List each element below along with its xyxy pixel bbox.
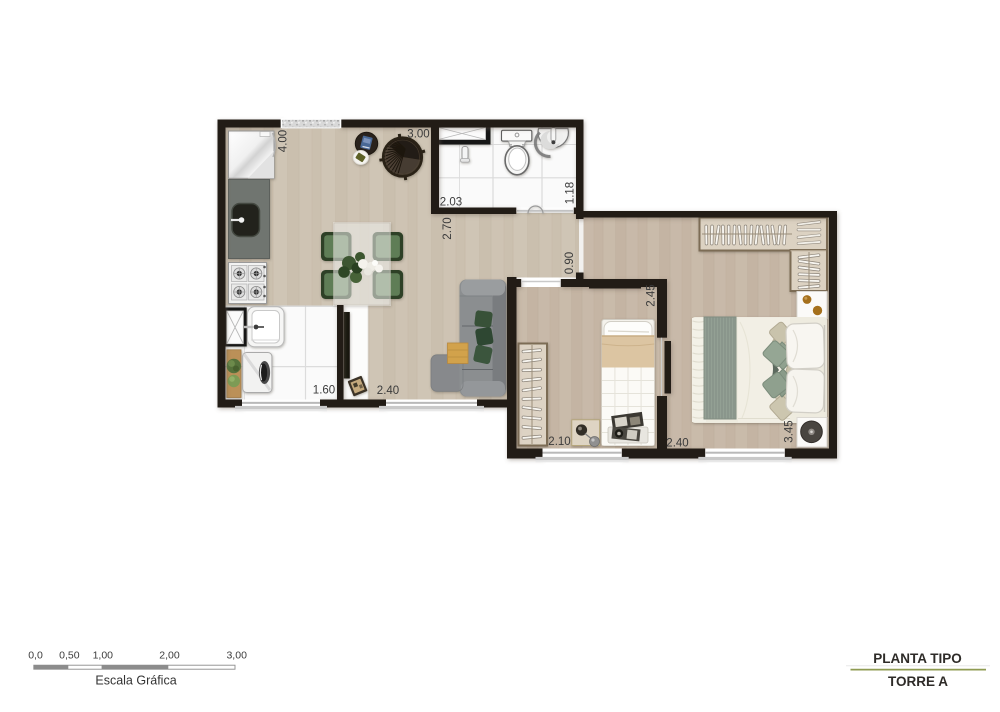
svg-text:1,00: 1,00 — [93, 650, 114, 662]
svg-text:4.00: 4.00 — [278, 130, 290, 152]
svg-text:2.03: 2.03 — [440, 197, 462, 209]
svg-text:0,50: 0,50 — [59, 650, 80, 662]
svg-text:3.00: 3.00 — [407, 129, 429, 141]
svg-text:2.40: 2.40 — [666, 438, 688, 450]
svg-text:2.45: 2.45 — [646, 284, 658, 306]
svg-text:1.60: 1.60 — [313, 385, 335, 397]
svg-text:Escala Gráfica: Escala Gráfica — [95, 674, 176, 688]
svg-text:PLANTA TIPO: PLANTA TIPO — [873, 651, 962, 666]
svg-text:TORRE A: TORRE A — [888, 674, 948, 689]
svg-text:0,0: 0,0 — [28, 650, 43, 662]
svg-text:3.45: 3.45 — [784, 420, 796, 442]
svg-text:2.70: 2.70 — [442, 217, 454, 239]
svg-text:2,00: 2,00 — [159, 650, 180, 662]
svg-text:3,00: 3,00 — [226, 650, 247, 662]
svg-text:1.18: 1.18 — [565, 182, 577, 204]
svg-text:2.40: 2.40 — [377, 385, 399, 397]
svg-text:2.10: 2.10 — [548, 436, 570, 448]
svg-text:0.90: 0.90 — [564, 252, 576, 274]
